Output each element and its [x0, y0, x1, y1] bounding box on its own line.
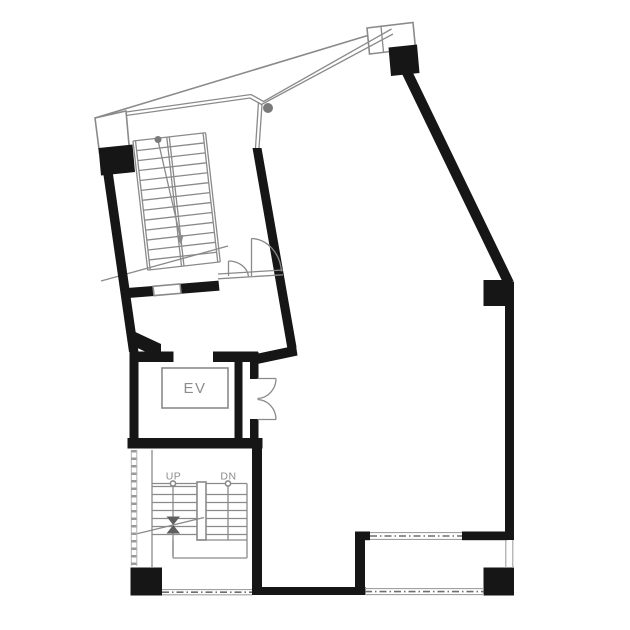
lower-stair-treads-right	[206, 495, 247, 535]
shaft-double-door	[258, 379, 277, 420]
lower-stair-center-rail	[197, 482, 206, 540]
stair-start-dot	[155, 136, 162, 143]
door-sill-line-inner	[218, 270, 283, 274]
column-bottom-left	[131, 568, 163, 596]
wall-shaft-inner	[235, 352, 243, 439]
hall-south-wall-opening	[153, 284, 181, 296]
column-bottom-right	[484, 568, 515, 596]
wall-bottom	[252, 587, 366, 595]
wall-room-bottom-right-stub	[462, 532, 508, 541]
wall-main-room-west	[253, 148, 297, 349]
wall-stairwell-east	[252, 448, 262, 595]
walls-and-columns	[99, 45, 515, 596]
stairs-up-label: UP	[166, 471, 182, 483]
window-drop-line-left	[256, 102, 259, 148]
corner-reference-dot	[263, 103, 273, 113]
outer-roofline	[95, 23, 409, 118]
wall-right-vertical	[505, 282, 514, 541]
wall-main-room-southwest	[254, 346, 298, 365]
elevator: EV	[162, 368, 228, 408]
wall-left-vertical	[130, 352, 139, 449]
door-swing-arc-small	[229, 261, 249, 277]
door-sill-line-outer	[218, 275, 283, 279]
window-line-lower	[126, 34, 393, 116]
wall-left-slanted	[100, 150, 139, 352]
upper-staircase	[133, 133, 220, 270]
shaft-door-arc-bottom	[258, 400, 277, 420]
wall-ev-hall-top-left	[130, 352, 174, 363]
elevator-label: EV	[183, 380, 206, 397]
wall-northeast-slanted	[398, 62, 514, 284]
shaft-door-arc-top	[258, 379, 277, 399]
floor-plan-page: EV UP DN	[0, 0, 630, 630]
wall-balcony-west	[355, 532, 365, 596]
wall-ev-hall-bottom	[128, 438, 263, 449]
stair-rails	[133, 133, 220, 270]
floor-plan-canvas: EV UP DN	[0, 0, 630, 630]
window-drop-line-right	[259, 105, 262, 149]
lower-staircase: UP DN	[136, 450, 247, 567]
outer-shell-lines	[95, 23, 416, 154]
stairwell-hatch-strip	[131, 450, 137, 566]
balcony-and-boundaries	[162, 533, 513, 595]
window-line-upper	[126, 29, 392, 112]
wall-hall-south-right	[180, 281, 220, 294]
stairs-down-label: DN	[220, 471, 236, 483]
